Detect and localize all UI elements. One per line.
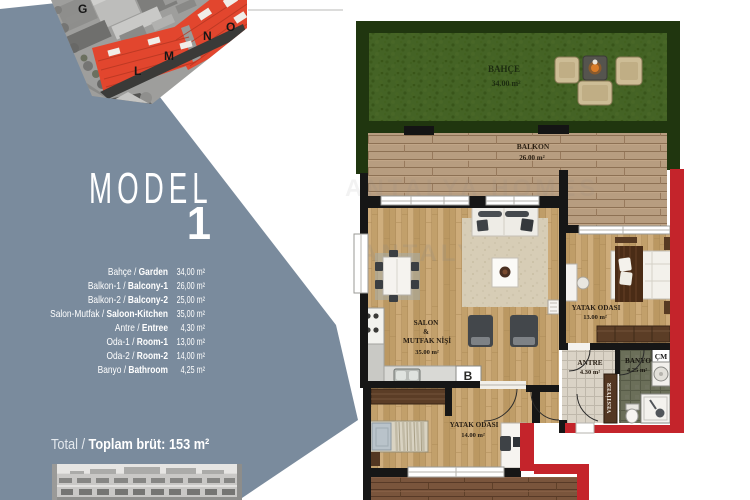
svg-text:B: B (464, 369, 473, 383)
svg-text:26.00 m²: 26.00 m² (519, 154, 544, 162)
svg-text:4,30 m²: 4,30 m² (181, 322, 205, 333)
svg-text:26,00 m²: 26,00 m² (177, 280, 205, 291)
svg-text:YATAK ODASI: YATAK ODASI (572, 304, 621, 312)
svg-text:Salon-Mutfak / Saloon-Kitchen: Salon-Mutfak / Saloon-Kitchen (50, 308, 168, 319)
svg-text:MUTFAK NİŞİ: MUTFAK NİŞİ (403, 335, 451, 345)
svg-text:4.30 m²: 4.30 m² (580, 369, 600, 376)
svg-text:4,25 m²: 4,25 m² (181, 364, 205, 375)
svg-text:SALON: SALON (414, 319, 440, 327)
svg-text:&: & (423, 328, 429, 336)
svg-text:Balkon-1 / Balcony-1: Balkon-1 / Balcony-1 (88, 280, 168, 291)
svg-text:34.00 m²: 34.00 m² (491, 79, 521, 88)
svg-text:ANTRE: ANTRE (577, 359, 602, 367)
svg-text:N: N (203, 29, 212, 43)
svg-text:VESTİYER: VESTİYER (606, 382, 613, 413)
svg-text:13.00 m²: 13.00 m² (583, 314, 607, 321)
svg-text:BANYO: BANYO (625, 357, 651, 365)
svg-text:M: M (164, 49, 174, 63)
svg-text:BALKON: BALKON (517, 142, 550, 151)
svg-text:13,00 m²: 13,00 m² (177, 336, 205, 347)
svg-text:Balkon-2 / Balcony-2: Balkon-2 / Balcony-2 (88, 294, 168, 305)
svg-text:YATAK ODASI: YATAK ODASI (450, 421, 499, 429)
svg-text:Oda-1 / Room-1: Oda-1 / Room-1 (106, 336, 168, 347)
svg-text:Bahçe / Garden: Bahçe / Garden (108, 266, 168, 277)
svg-text:1: 1 (187, 197, 211, 249)
svg-text:14.00 m²: 14.00 m² (461, 432, 485, 439)
svg-text:Banyo / Bathroom: Banyo / Bathroom (98, 364, 168, 375)
svg-text:G: G (78, 2, 87, 16)
svg-text:BAHÇE: BAHÇE (488, 64, 520, 74)
svg-text:Total / Toplam brüt: 153 m²: Total / Toplam brüt: 153 m² (51, 435, 210, 452)
svg-text:35.00 m²: 35.00 m² (415, 349, 439, 356)
svg-text:34,00 m²: 34,00 m² (177, 266, 205, 277)
svg-text:25,00 m²: 25,00 m² (177, 294, 205, 305)
svg-text:Oda-2 / Room-2: Oda-2 / Room-2 (106, 350, 168, 361)
svg-text:Antre / Entree: Antre / Entree (115, 322, 168, 333)
svg-text:ÇM: ÇM (655, 352, 668, 361)
svg-text:35,00 m²: 35,00 m² (177, 308, 205, 319)
svg-text:L: L (134, 64, 141, 78)
svg-text:14,00 m²: 14,00 m² (177, 350, 205, 361)
svg-text:O: O (226, 20, 235, 34)
